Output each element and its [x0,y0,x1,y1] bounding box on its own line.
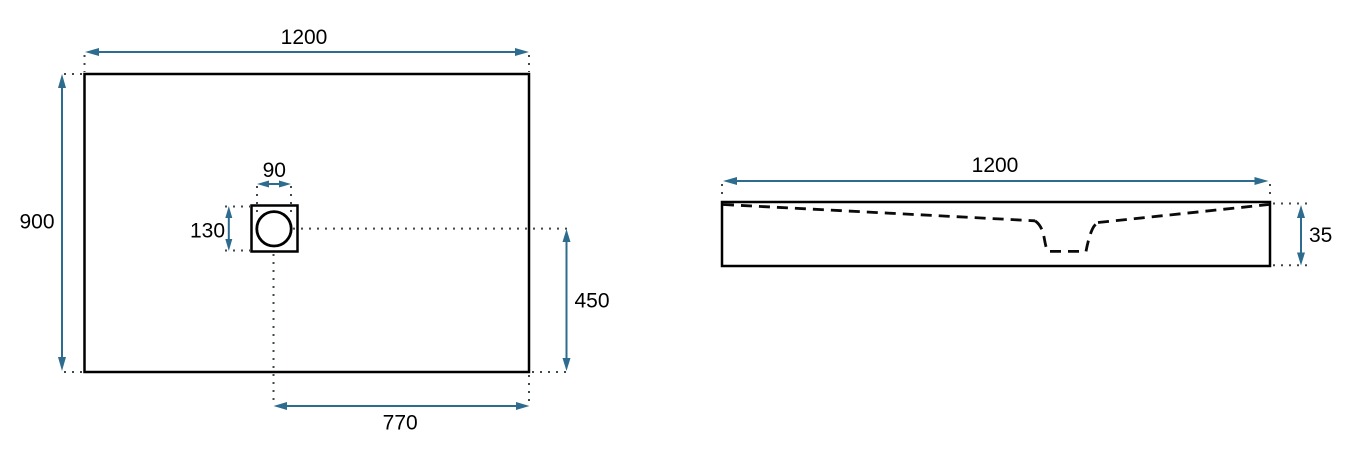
svg-text:90: 90 [263,159,286,182]
svg-text:450: 450 [574,289,609,312]
svg-text:1200: 1200 [972,154,1019,177]
svg-text:130: 130 [190,219,225,242]
svg-text:900: 900 [19,210,54,233]
svg-text:770: 770 [383,411,418,434]
svg-text:1200: 1200 [281,26,328,49]
svg-text:35: 35 [1309,224,1332,247]
